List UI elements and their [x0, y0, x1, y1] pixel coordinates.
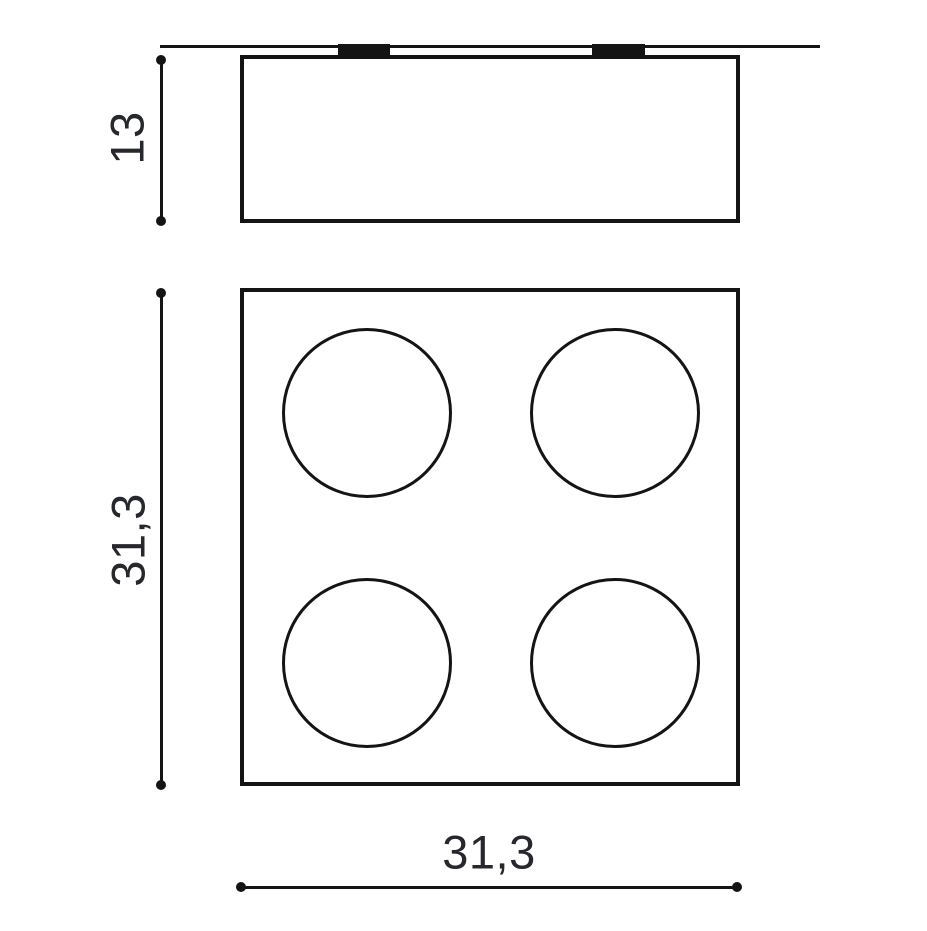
height-dimension-line [160, 60, 163, 221]
height-dimension-label: 13 [104, 111, 151, 164]
fixture-body-outline [240, 55, 740, 223]
mounting-tab-left [338, 44, 390, 55]
dimension-drawing: 13 31,3 31,3 [0, 0, 927, 931]
dimension-endpoint-dot [156, 216, 166, 226]
spot-circle-bottom-left [282, 578, 452, 748]
dimension-endpoint-dot [236, 882, 246, 892]
dimension-endpoint-dot [732, 882, 742, 892]
width-dimension-label: 31,3 [442, 829, 535, 876]
ceiling-line [160, 45, 820, 48]
dimension-endpoint-dot [156, 55, 166, 65]
mounting-tab-right [592, 44, 645, 55]
spot-circle-bottom-right [530, 578, 700, 748]
side-length-dimension-label: 31,3 [105, 493, 152, 586]
fixture-plan-outline [240, 288, 740, 786]
side-length-dimension-line [160, 293, 163, 786]
spot-circle-top-right [530, 328, 700, 498]
width-dimension-line [240, 886, 738, 889]
dimension-endpoint-dot [156, 780, 166, 790]
spot-circle-top-left [282, 328, 452, 498]
dimension-endpoint-dot [156, 288, 166, 298]
